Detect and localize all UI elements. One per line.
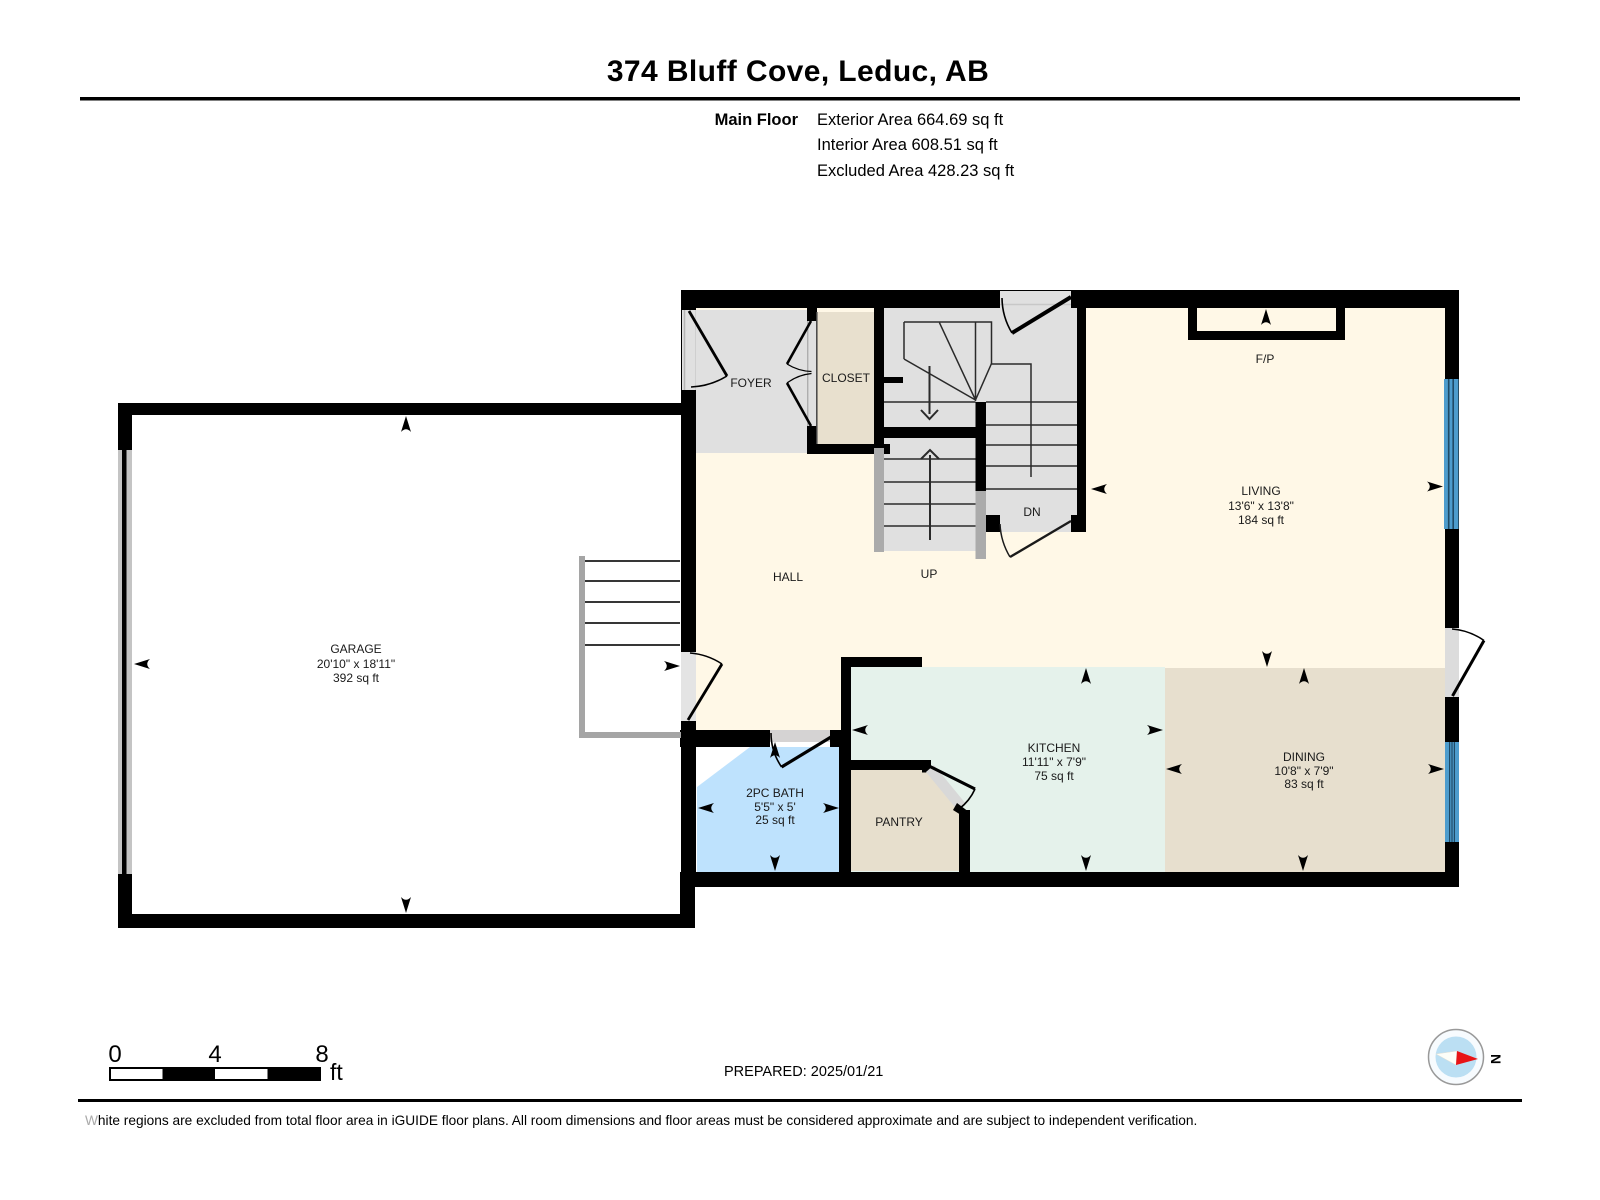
svg-text:392 sq ft: 392 sq ft [333, 671, 380, 685]
svg-text:8: 8 [315, 1041, 328, 1068]
svg-text:N: N [1488, 1054, 1504, 1064]
svg-text:2PC BATH: 2PC BATH [746, 786, 804, 800]
svg-text:184 sq ft: 184 sq ft [1238, 513, 1285, 527]
svg-text:20'10" x 18'11": 20'10" x 18'11" [317, 657, 395, 671]
svg-text:374 Bluff Cove, Leduc, AB: 374 Bluff Cove, Leduc, AB [607, 55, 989, 88]
svg-text:White regions are excluded fro: White regions are excluded from total fl… [85, 1113, 1197, 1128]
svg-text:KITCHEN: KITCHEN [1028, 741, 1081, 755]
svg-text:ft: ft [330, 1059, 343, 1085]
svg-text:PREPARED: 2025/01/21: PREPARED: 2025/01/21 [724, 1064, 883, 1080]
svg-text:DINING: DINING [1283, 750, 1325, 764]
svg-text:4: 4 [208, 1041, 221, 1068]
svg-text:5'5" x 5': 5'5" x 5' [754, 800, 796, 814]
svg-text:UP: UP [921, 567, 938, 581]
svg-text:Interior Area 608.51 sq ft: Interior Area 608.51 sq ft [817, 136, 998, 154]
svg-text:F/P: F/P [1256, 352, 1275, 366]
svg-text:75 sq ft: 75 sq ft [1034, 769, 1074, 783]
svg-text:HALL: HALL [773, 570, 803, 584]
svg-text:LIVING: LIVING [1241, 484, 1280, 498]
svg-text:11'11" x 7'9": 11'11" x 7'9" [1022, 755, 1086, 769]
svg-text:0: 0 [108, 1041, 121, 1068]
svg-text:Main Floor: Main Floor [715, 111, 799, 129]
svg-text:83 sq ft: 83 sq ft [1284, 777, 1324, 791]
svg-text:25 sq ft: 25 sq ft [755, 813, 795, 827]
svg-text:Exterior Area 664.69 sq ft: Exterior Area 664.69 sq ft [817, 111, 1004, 129]
svg-text:10'8" x 7'9": 10'8" x 7'9" [1274, 764, 1333, 778]
svg-text:13'6" x 13'8": 13'6" x 13'8" [1228, 499, 1294, 513]
svg-text:GARAGE: GARAGE [330, 642, 381, 656]
svg-text:FOYER: FOYER [730, 376, 772, 390]
svg-text:CLOSET: CLOSET [822, 371, 871, 385]
svg-text:DN: DN [1023, 505, 1040, 519]
svg-text:Excluded Area 428.23 sq ft: Excluded Area 428.23 sq ft [817, 162, 1015, 180]
svg-text:PANTRY: PANTRY [875, 815, 923, 829]
